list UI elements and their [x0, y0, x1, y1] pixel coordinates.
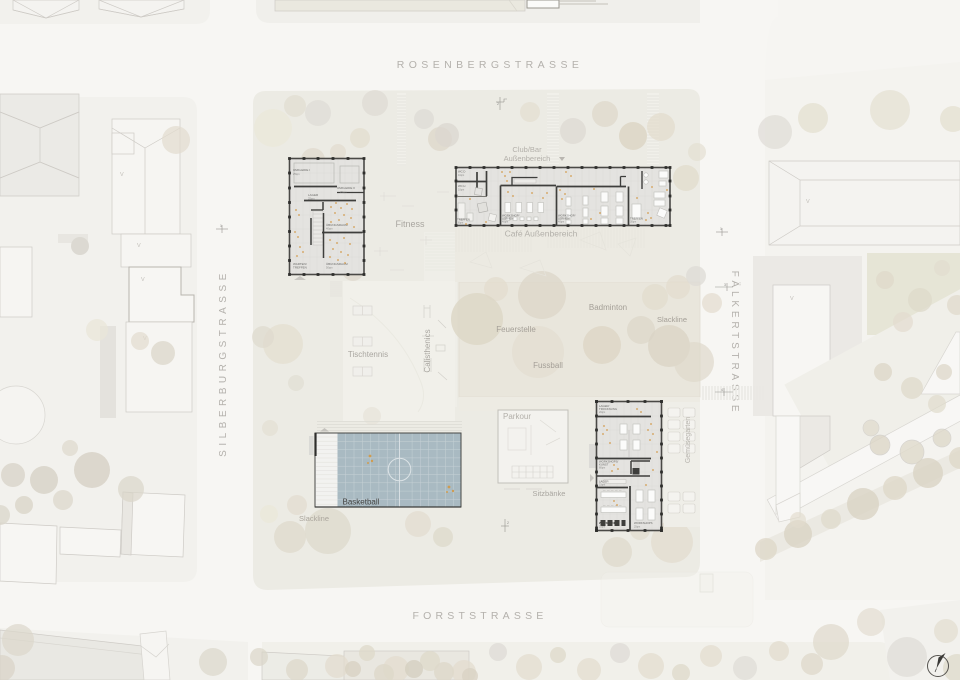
svg-text:TREFFEN: TREFFEN: [293, 266, 307, 270]
svg-text:30qm: 30qm: [457, 222, 463, 225]
svg-text:Gemüsegarten: Gemüsegarten: [685, 417, 692, 463]
svg-text:50qm: 50qm: [326, 266, 333, 270]
svg-text:WORKSHOPS: WORKSHOPS: [634, 521, 653, 525]
svg-text:80qm: 80qm: [599, 467, 605, 470]
svg-text:20qm: 20qm: [599, 411, 605, 414]
svg-text:Feuerstelle: Feuerstelle: [496, 325, 536, 334]
svg-text:1: 1: [720, 227, 722, 231]
svg-text:V: V: [137, 243, 141, 249]
svg-text:FORSTSTRASSE: FORSTSTRASSE: [413, 610, 548, 622]
svg-text:UMKLEIDE II: UMKLEIDE II: [337, 186, 355, 190]
svg-text:UMKLEIDE I: UMKLEIDE I: [293, 168, 310, 172]
svg-text:25qm: 25qm: [599, 526, 605, 529]
svg-text:V: V: [790, 296, 794, 302]
svg-text:Außenbereich: Außenbereich: [504, 154, 551, 163]
svg-text:LAGER: LAGER: [308, 193, 319, 197]
svg-text:4: 4: [721, 388, 723, 392]
svg-text:10qm: 10qm: [458, 189, 464, 192]
svg-text:ÜBUNGSRAUM: ÜBUNGSRAUM: [326, 223, 348, 227]
svg-text:ROSENBERGSTRASSE: ROSENBERGSTRASSE: [397, 59, 584, 71]
svg-text:30qm: 30qm: [630, 221, 636, 224]
svg-text:3: 3: [724, 283, 726, 287]
svg-text:2: 2: [497, 102, 499, 106]
svg-text:WORKSHOPS: WORKSHOPS: [599, 521, 618, 525]
svg-text:25qm: 25qm: [308, 197, 315, 201]
svg-text:Basketball: Basketball: [343, 498, 380, 507]
svg-text:Sitzbänke: Sitzbänke: [533, 489, 566, 498]
svg-text:40qm: 40qm: [502, 221, 508, 224]
svg-text:Café Außenbereich: Café Außenbereich: [505, 229, 578, 239]
svg-text:Slackline: Slackline: [657, 315, 687, 324]
svg-text:WC H: WC H: [458, 184, 465, 188]
svg-text:WC D: WC D: [458, 170, 465, 174]
svg-text:25qm: 25qm: [293, 172, 300, 176]
svg-text:40qm: 40qm: [558, 221, 564, 224]
svg-text:Fitness: Fitness: [395, 219, 425, 229]
svg-text:1: 1: [220, 224, 222, 228]
svg-text:Club/Bar: Club/Bar: [512, 145, 542, 154]
svg-text:Parkour: Parkour: [503, 412, 531, 421]
svg-text:2: 2: [507, 521, 509, 525]
svg-text:V: V: [806, 199, 810, 205]
svg-text:15qm: 15qm: [599, 484, 605, 487]
svg-text:Slackline: Slackline: [299, 514, 329, 523]
svg-text:10qm: 10qm: [458, 174, 464, 177]
svg-text:25qm: 25qm: [340, 190, 347, 194]
svg-text:Fussball: Fussball: [533, 361, 563, 370]
svg-text:40qm: 40qm: [326, 227, 333, 231]
svg-text:Calisthenics: Calisthenics: [423, 329, 432, 372]
svg-text:Tischtennis: Tischtennis: [348, 350, 388, 359]
svg-text:V: V: [141, 277, 145, 283]
svg-text:V: V: [120, 172, 124, 178]
svg-text:Badminton: Badminton: [589, 303, 627, 312]
svg-text:SILBERBURGSTRASSE: SILBERBURGSTRASSE: [218, 269, 229, 457]
svg-text:25qm: 25qm: [634, 526, 640, 529]
